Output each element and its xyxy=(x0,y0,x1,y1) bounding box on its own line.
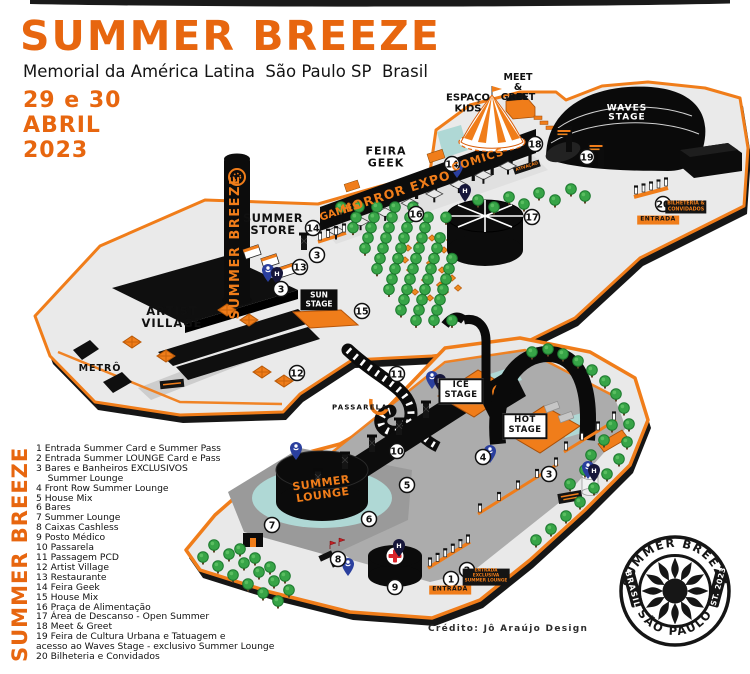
turnstile-post xyxy=(649,181,653,190)
summer-breeze-stamp: SUMMER BREEZE SÃO PAULO BRASIL EST. 2023 xyxy=(614,530,736,652)
svg-text:3: 3 xyxy=(546,469,553,480)
legend-vertical-title: SUMMER BREEZE xyxy=(8,442,38,662)
map-marker-17: 17 xyxy=(525,210,540,225)
map-marker-10: 10 xyxy=(390,444,405,459)
round-tank xyxy=(447,200,523,266)
label-entrada-2: ENTRADA xyxy=(637,216,679,225)
label-sun-stage: SUN STAGE xyxy=(300,289,337,310)
map-marker-16: 16 xyxy=(409,207,424,222)
svg-text:19: 19 xyxy=(580,152,593,163)
svg-text:16: 16 xyxy=(409,209,423,220)
map-marker-3: 3 xyxy=(274,282,289,297)
legend-item: 15 House Mix xyxy=(36,593,274,603)
map-marker-4: 4 xyxy=(476,450,491,465)
map-marker-1: 1 xyxy=(444,572,459,587)
turnstile-post xyxy=(436,553,440,562)
turnstile-post xyxy=(451,544,455,553)
turnstile-post xyxy=(466,534,470,543)
map-marker-18: 18 xyxy=(528,137,543,152)
turnstile-post xyxy=(564,441,568,450)
svg-text:3: 3 xyxy=(314,250,321,261)
svg-text:15: 15 xyxy=(355,306,368,317)
label-entrada-exclusiva: ENTRADA EXCLUSIVA SUMMER LOUNGE xyxy=(463,569,510,586)
page: { "header": { "title": "SUMMER BREEZE", … xyxy=(0,0,750,674)
label-entrada-1: ENTRADA xyxy=(429,586,471,595)
stamp-right-banner: EST. 2023 xyxy=(705,566,728,613)
legend-item: 20 Bilheteria e Convidados xyxy=(36,652,274,662)
svg-text:14: 14 xyxy=(306,223,320,234)
map-marker-13: 13 xyxy=(293,260,308,275)
label-waves-stage: WAVES STAGE xyxy=(607,105,647,124)
label-tower: SUMMER BREEZE xyxy=(229,175,243,320)
label-bilheteria: BILHETERIA & CONVIDADOS xyxy=(665,200,706,213)
turnstile-post xyxy=(657,179,661,188)
turnstile-post xyxy=(535,469,539,478)
turnstile-post xyxy=(497,492,501,501)
map-marker-9: 9 xyxy=(388,580,403,595)
legend-item: 5 House Mix xyxy=(36,494,274,504)
map-marker-14: 14 xyxy=(306,221,321,236)
map-marker-12: 12 xyxy=(290,366,305,381)
svg-text:10: 10 xyxy=(390,446,404,457)
svg-text:13: 13 xyxy=(293,262,306,273)
turnstile-post xyxy=(428,557,432,566)
svg-text:6: 6 xyxy=(366,514,373,525)
turnstile-post xyxy=(443,548,447,557)
turnstile-post xyxy=(596,421,600,430)
map-marker-3: 3 xyxy=(542,467,557,482)
page-subtitle: Memorial da América Latina São Paulo SP … xyxy=(23,62,428,81)
svg-text:8: 8 xyxy=(335,554,342,565)
credit-text: Crédito: Jô Araújo Design xyxy=(428,624,588,634)
svg-text:H: H xyxy=(591,467,596,475)
map-marker-19: 19 xyxy=(580,150,595,165)
turnstile-post xyxy=(334,226,338,235)
turnstile-post xyxy=(516,480,520,489)
turnstile-post xyxy=(554,457,558,466)
map-marker-8: 8 xyxy=(331,552,346,567)
event-dates: 29 e 30 ABRIL 2023 xyxy=(23,88,121,163)
label-meet-greet: MEET & GREET xyxy=(501,73,536,103)
svg-text:18: 18 xyxy=(528,139,542,150)
label-hot-stage: HOT STAGE xyxy=(502,413,547,439)
svg-text:9: 9 xyxy=(392,582,399,593)
turnstile-post xyxy=(326,229,330,238)
map-marker-6: 6 xyxy=(362,512,377,527)
svg-text:H: H xyxy=(274,270,279,278)
turnstile-post xyxy=(458,539,462,548)
svg-text:11: 11 xyxy=(390,369,403,380)
turnstile-post xyxy=(612,411,616,420)
legend-vertical-title-box: SUMMER BREEZE xyxy=(6,442,38,662)
label-artist-village: ARTIST VILLAGE xyxy=(141,305,202,329)
svg-text:4: 4 xyxy=(480,452,487,463)
label-espaco-kids: ESPAÇO KIDS xyxy=(446,94,490,115)
map-marker-15: 15 xyxy=(355,304,370,319)
turnstile-post xyxy=(664,177,668,186)
svg-text:17: 17 xyxy=(525,212,538,223)
svg-text:H: H xyxy=(396,542,401,550)
label-ice-stage: ICE STAGE xyxy=(438,378,483,404)
label-metro: METRÔ xyxy=(79,364,122,374)
page-title: SUMMER BREEZE xyxy=(20,12,441,60)
turnstile-post xyxy=(478,503,482,512)
top-edge-strip xyxy=(30,0,730,7)
turnstile-post xyxy=(342,223,346,232)
svg-text:H: H xyxy=(462,187,467,195)
turnstile-post xyxy=(634,185,638,194)
svg-text:3: 3 xyxy=(278,284,285,295)
map-marker-11: 11 xyxy=(390,367,405,382)
turnstile-post xyxy=(642,183,646,192)
turnstile-post xyxy=(580,431,584,440)
svg-text:12: 12 xyxy=(290,368,303,379)
label-feira-geek: FEIRA GEEK xyxy=(365,145,406,168)
map-marker-3: 3 xyxy=(310,248,325,263)
svg-text:1: 1 xyxy=(448,574,455,585)
map-marker-5: 5 xyxy=(400,478,415,493)
legend: 1 Entrada Summer Card e Summer Pass2 Ent… xyxy=(36,444,274,662)
label-passarela: PASSARELA xyxy=(332,404,388,411)
label-summer-store: SUMMER STORE xyxy=(243,212,303,236)
svg-text:5: 5 xyxy=(404,480,411,491)
